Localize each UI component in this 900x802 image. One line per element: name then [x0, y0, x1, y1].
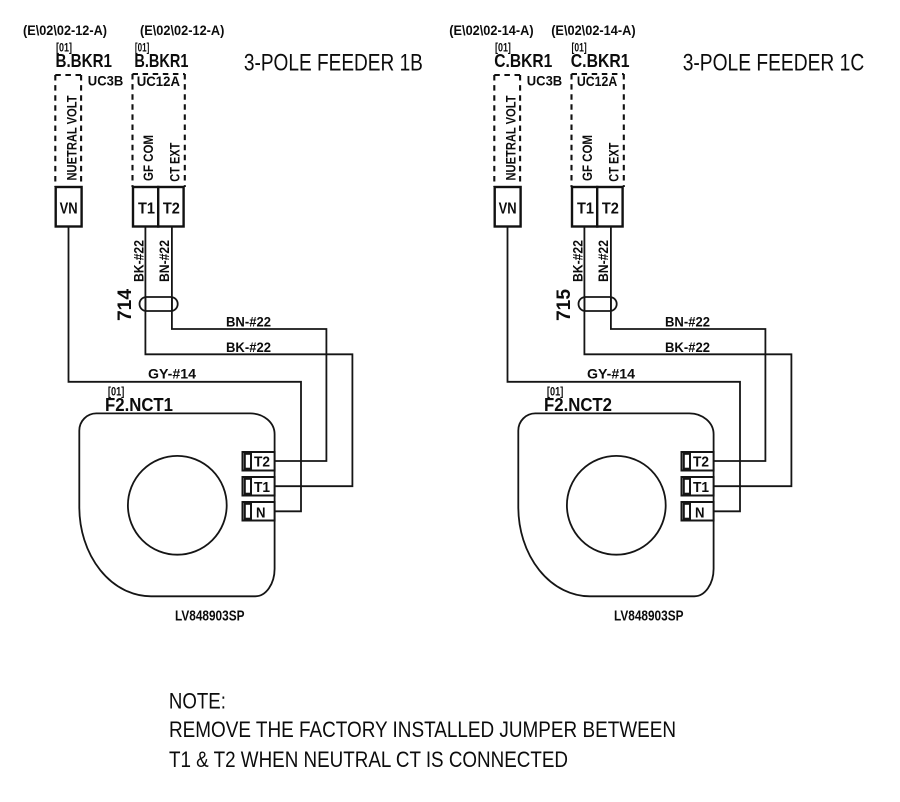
svg-text:BN-#22: BN-#22	[226, 315, 271, 330]
svg-text:B.BKR1: B.BKR1	[56, 51, 113, 71]
svg-text:CT EXT: CT EXT	[607, 142, 622, 182]
svg-text:BN-#22: BN-#22	[596, 240, 611, 282]
svg-text:T2: T2	[693, 455, 709, 471]
svg-text:VN: VN	[499, 201, 517, 218]
svg-text:NUETRAL VOLT: NUETRAL VOLT	[64, 95, 79, 181]
svg-text:T1 & T2 WHEN NEUTRAL CT IS CON: T1 & T2 WHEN NEUTRAL CT IS CONNECTED	[169, 747, 568, 772]
svg-text:T2: T2	[602, 201, 619, 218]
svg-text:T2: T2	[254, 455, 270, 471]
svg-text:(E\02\02-14-A): (E\02\02-14-A)	[449, 23, 533, 38]
svg-text:BK-#22: BK-#22	[226, 340, 271, 355]
svg-text:T1: T1	[254, 480, 270, 496]
svg-text:714: 714	[115, 289, 136, 321]
svg-text:C.BKR1: C.BKR1	[494, 51, 552, 71]
svg-text:VN: VN	[60, 201, 78, 218]
svg-text:N: N	[695, 506, 705, 522]
svg-text:N: N	[256, 506, 266, 522]
svg-text:GF COM: GF COM	[141, 135, 156, 181]
svg-text:LV848903SP: LV848903SP	[175, 609, 245, 625]
svg-text:T2: T2	[163, 201, 180, 218]
svg-text:T1: T1	[138, 201, 155, 218]
svg-text:F2.NCT2: F2.NCT2	[544, 395, 612, 415]
svg-text:GF COM: GF COM	[580, 135, 595, 181]
svg-text:CT EXT: CT EXT	[168, 142, 183, 182]
svg-text:BN-#22: BN-#22	[665, 315, 710, 330]
svg-text:LV848903SP: LV848903SP	[614, 609, 684, 625]
svg-text:B.BKR1: B.BKR1	[134, 51, 188, 71]
svg-text:UC3B: UC3B	[527, 74, 563, 89]
svg-text:715: 715	[554, 289, 575, 321]
svg-text:(E\02\02-12-A): (E\02\02-12-A)	[23, 23, 107, 38]
svg-text:UC12A: UC12A	[137, 74, 181, 89]
svg-text:T1: T1	[693, 480, 709, 496]
svg-text:NUETRAL VOLT: NUETRAL VOLT	[503, 95, 518, 181]
svg-text:(E\02\02-12-A): (E\02\02-12-A)	[140, 23, 224, 38]
svg-text:UC3B: UC3B	[88, 74, 124, 89]
svg-text:F2.NCT1: F2.NCT1	[105, 395, 173, 415]
svg-text:REMOVE THE FACTORY INSTALLED J: REMOVE THE FACTORY INSTALLED JUMPER BETW…	[169, 717, 676, 742]
svg-text:BK-#22: BK-#22	[131, 240, 146, 282]
svg-text:NOTE:: NOTE:	[169, 689, 226, 714]
svg-text:UC12A: UC12A	[577, 74, 618, 89]
svg-text:3-POLE FEEDER 1B: 3-POLE FEEDER 1B	[244, 50, 423, 77]
svg-text:(E\02\02-14-A): (E\02\02-14-A)	[551, 23, 635, 38]
svg-text:BK-#22: BK-#22	[665, 340, 710, 355]
svg-text:T1: T1	[577, 201, 594, 218]
svg-text:BK-#22: BK-#22	[570, 240, 585, 282]
svg-text:3-POLE FEEDER 1C: 3-POLE FEEDER 1C	[683, 50, 865, 77]
svg-text:GY-#14: GY-#14	[148, 367, 197, 382]
svg-text:GY-#14: GY-#14	[587, 367, 636, 382]
svg-text:BN-#22: BN-#22	[157, 240, 172, 282]
svg-text:C.BKR1: C.BKR1	[571, 51, 630, 71]
